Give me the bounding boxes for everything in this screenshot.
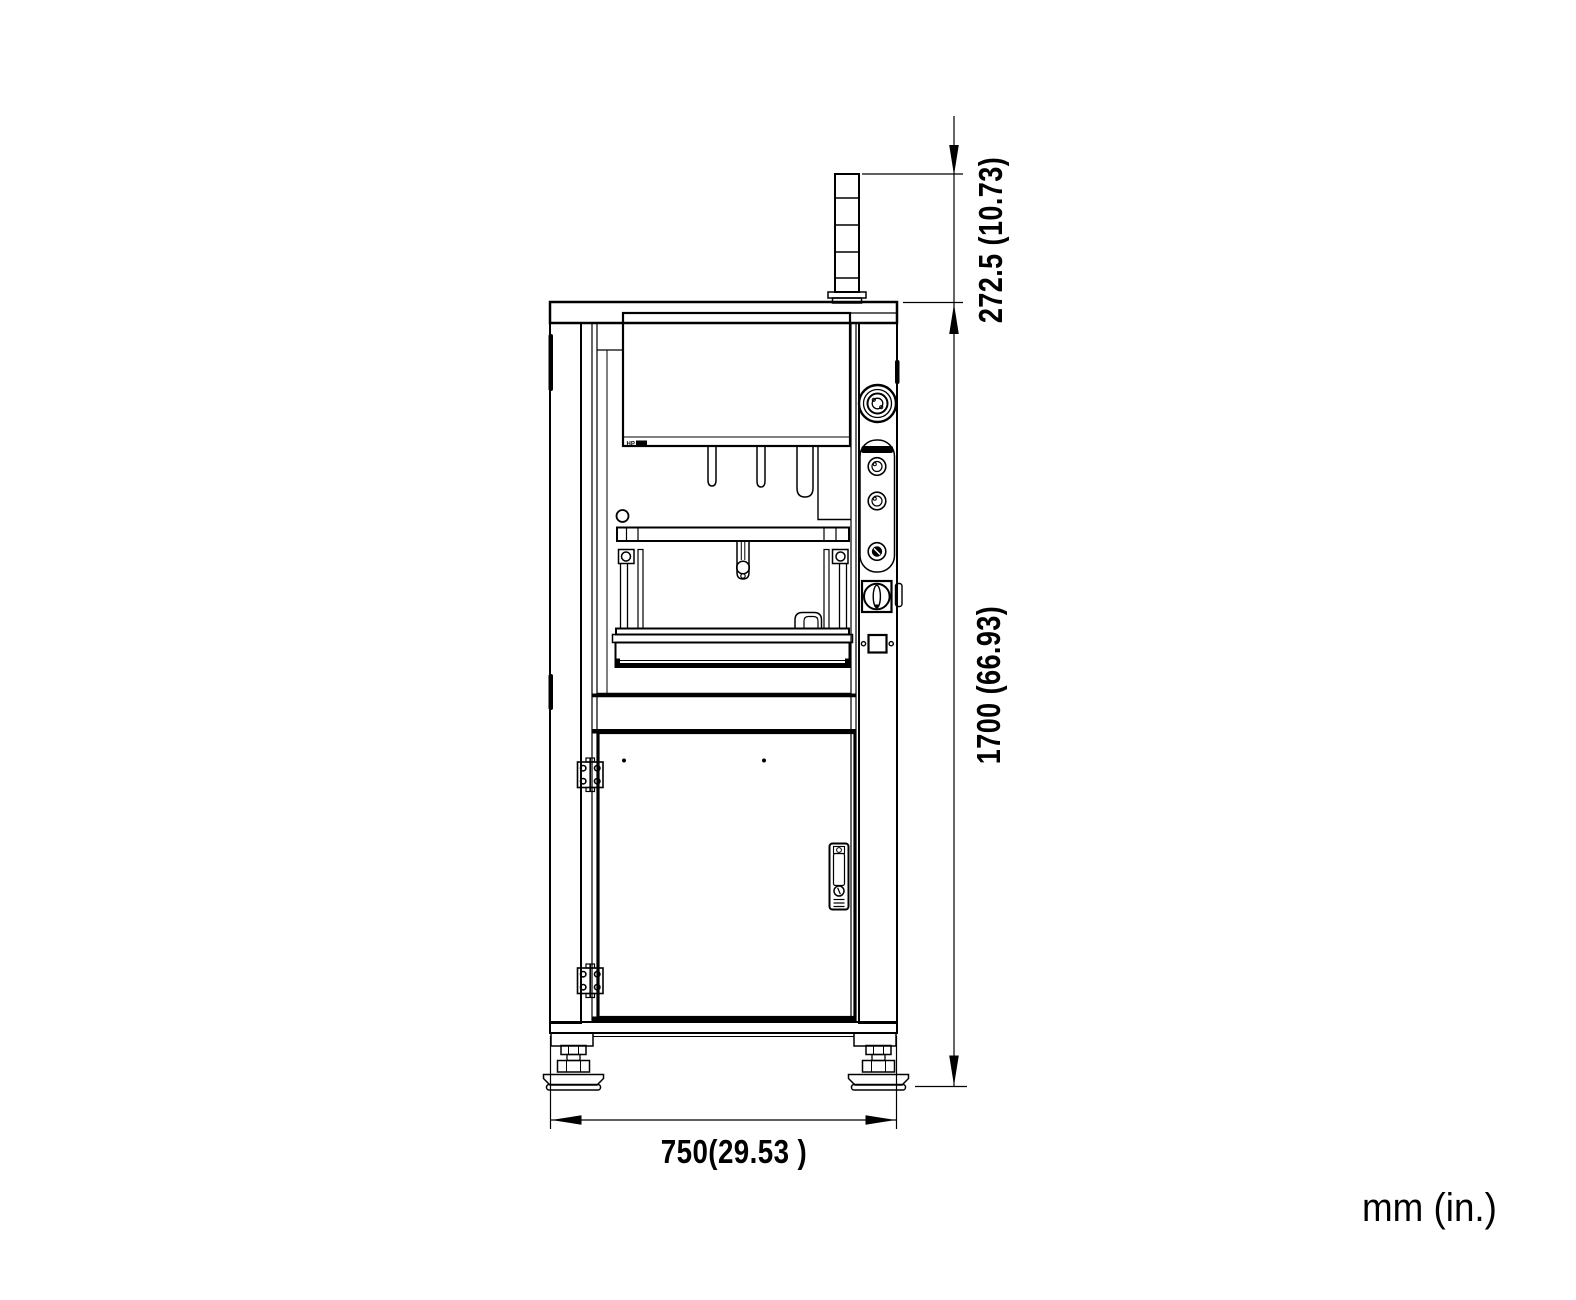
- arrowhead-left-icon: [552, 1115, 582, 1125]
- leveling-foot-left: [544, 1046, 604, 1091]
- machine-front-view-drawing: HP: [0, 0, 1576, 1300]
- panel-badge-text: HP: [627, 442, 635, 448]
- side-bracket: [818, 446, 851, 520]
- base-frame: [550, 1022, 897, 1046]
- dimension-drawing: HP: [0, 0, 1576, 1300]
- arrowhead-right-icon: [866, 1115, 896, 1125]
- arrowhead-down-icon: [949, 1056, 959, 1086]
- center-rod: [737, 541, 750, 579]
- dimension-label-tower-height: 272.5 (10.73): [973, 150, 1009, 330]
- door-handle: [830, 844, 849, 910]
- arrowhead-up-icon: [949, 304, 959, 334]
- pilot-hole: [617, 510, 629, 522]
- power-connector: [861, 635, 893, 653]
- panel-label-band: [862, 446, 894, 453]
- emergency-stop-button: [859, 385, 896, 422]
- leveling-foot-right: [849, 1046, 909, 1091]
- cabinet-door: [592, 733, 856, 1022]
- dimension-label-base-width: 750(29.53 ): [642, 1134, 827, 1170]
- left-edge-tab: [549, 334, 554, 391]
- work-area: [619, 541, 849, 629]
- cross-beam: [617, 528, 849, 542]
- frame-left-column: [549, 323, 624, 1023]
- key-switch: [868, 543, 886, 561]
- arrowhead-down-icon: [949, 145, 959, 175]
- press-rods: [708, 446, 851, 520]
- guide-block: [795, 613, 822, 629]
- dimension-label-total-height: 1700 (66.93): [971, 595, 1007, 775]
- control-panel: [860, 440, 895, 572]
- mid-frame-band: [592, 694, 856, 733]
- right-edge-tab: [895, 360, 900, 384]
- work-table: [613, 629, 853, 668]
- stack-light: [828, 174, 866, 303]
- left-edge-tab: [549, 674, 554, 710]
- push-button: [868, 492, 886, 510]
- push-button: [868, 458, 886, 476]
- dimension-annotations: [551, 116, 968, 1129]
- units-note: mm (in.): [1362, 1186, 1497, 1231]
- display-panel: HP: [623, 313, 850, 448]
